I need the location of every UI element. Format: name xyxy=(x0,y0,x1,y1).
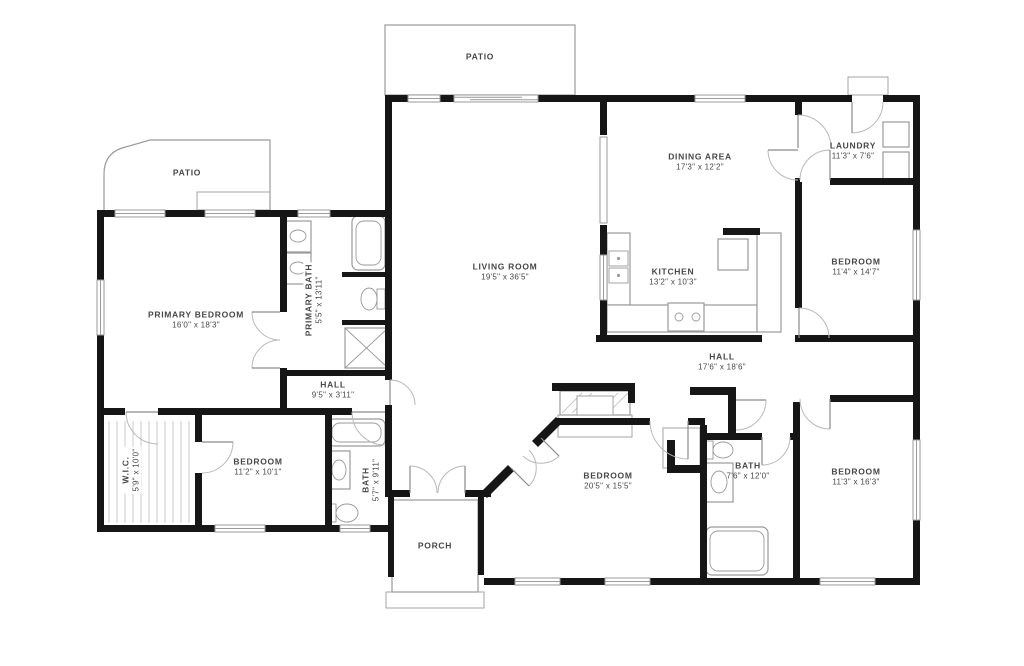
porch-step xyxy=(386,592,484,608)
room-label-bath-se: BATH7'6" x 12'0" xyxy=(726,460,769,481)
bathtub xyxy=(706,527,768,575)
kitchen-counter-right xyxy=(757,233,781,332)
room-label-primary-bedroom: PRIMARY BEDROOM16'0" x 18'3" xyxy=(148,309,244,330)
dryer xyxy=(883,152,909,181)
cased-opening xyxy=(600,137,607,223)
toilet xyxy=(361,288,377,310)
fridge xyxy=(718,239,748,270)
room-label-living-room: LIVING ROOM19'5" x 36'5" xyxy=(473,261,538,282)
sink-drain-icon xyxy=(617,274,620,277)
sink-drain-icon xyxy=(617,257,620,260)
entry-door-arc xyxy=(852,102,883,133)
walls-layer xyxy=(97,95,920,585)
room-label-hall-main: HALL17'6" x 18'6" xyxy=(698,351,746,372)
room-label-laundry: LAUNDRY11'3" x 7'6" xyxy=(830,140,876,161)
room-label-kitchen: KITCHEN13'2" x 10'3" xyxy=(649,266,697,287)
room-label-bedroom-ne: BEDROOM11'4" x 14'7" xyxy=(831,256,880,277)
toilet-tank xyxy=(706,441,713,459)
toilet-tank xyxy=(377,289,385,309)
entry-stoop xyxy=(848,77,888,95)
room-label-wic: W.I.C.5'9" x 10'0" xyxy=(120,446,141,493)
room-label-porch: PORCH xyxy=(418,540,452,551)
vanity xyxy=(285,221,311,252)
firebox xyxy=(577,396,613,415)
room-label-dining-area: DINING AREA17'3" x 12'2" xyxy=(668,151,732,172)
patio-left-step xyxy=(197,192,270,210)
floor-plan-drawing xyxy=(0,0,1024,666)
toilet xyxy=(713,442,733,458)
room-label-patio-left: PATIO xyxy=(173,167,201,178)
room-label-primary-bath: PRIMARY BATH5'5" x 13'11" xyxy=(303,262,324,338)
sliding-door xyxy=(454,95,538,102)
room-label-bedroom-s: BEDROOM20'5" x 15'5" xyxy=(583,470,632,491)
room-label-bedroom-se: BEDROOM11'3" x 16'3" xyxy=(831,466,880,487)
room-label-patio-top: PATIO xyxy=(466,51,494,62)
bathtub xyxy=(352,216,385,270)
fixtures-layer xyxy=(109,122,909,575)
toilet xyxy=(336,504,358,522)
room-label-bath-sw: BATH5'7" x 9'11" xyxy=(360,457,381,503)
washer xyxy=(883,122,909,147)
room-label-bedroom-sw: BEDROOM11'2" x 10'1" xyxy=(233,456,282,477)
stove xyxy=(668,303,704,331)
floor-plan: PATIO PATIO LIVING ROOM19'5" x 36'5" DIN… xyxy=(0,0,1024,666)
room-label-hall-primary: HALL9'5" x 3'11" xyxy=(312,379,354,400)
